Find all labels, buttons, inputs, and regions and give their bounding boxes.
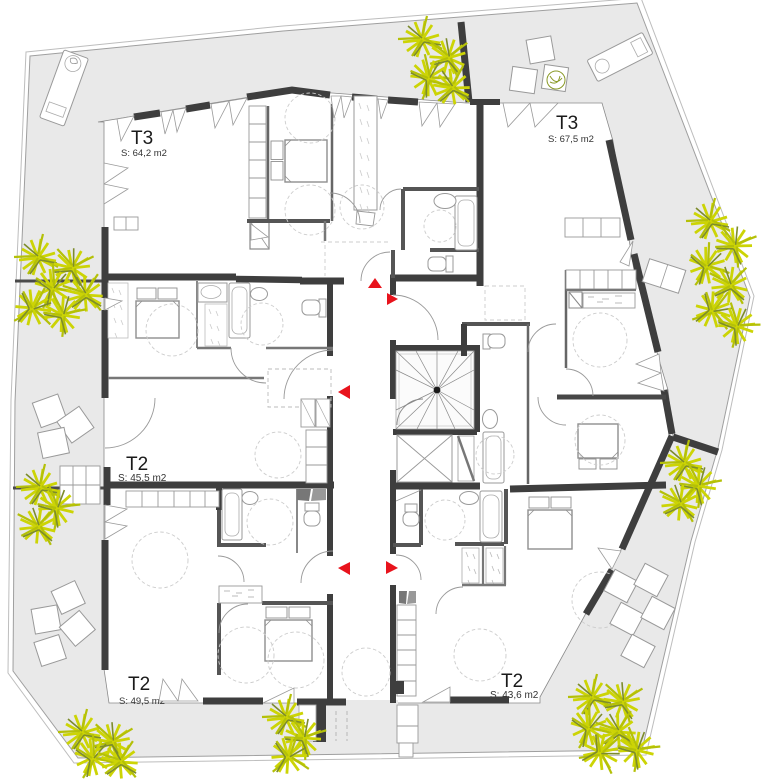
svg-text:S: 64,2 m2: S: 64,2 m2 xyxy=(121,148,167,159)
svg-text:T3: T3 xyxy=(556,113,578,134)
svg-text:T2: T2 xyxy=(128,674,150,695)
svg-text:T2: T2 xyxy=(501,671,523,692)
svg-text:T2: T2 xyxy=(126,454,148,475)
svg-text:T3: T3 xyxy=(131,128,153,149)
svg-text:S: 49,5 m2: S: 49,5 m2 xyxy=(119,696,165,707)
svg-text:S: 67,5 m2: S: 67,5 m2 xyxy=(548,134,594,145)
